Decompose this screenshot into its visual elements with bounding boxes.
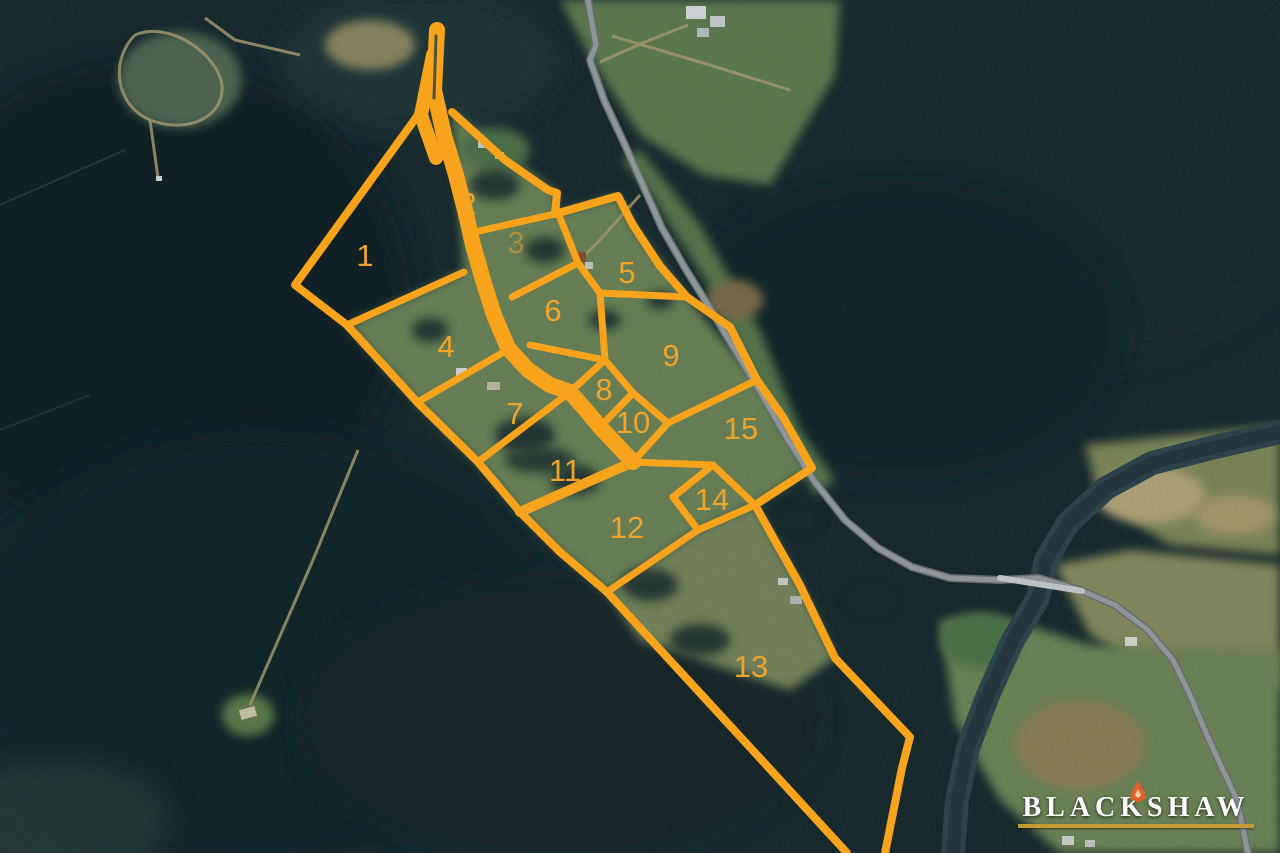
lot-label-11: 11 [549,453,581,488]
lot-label-13: 13 [734,649,768,684]
aerial-subdivision-map: 123456789101112131415 BLACKSHAW [0,0,1280,853]
lot-boundary-lot6-lot9 [600,293,605,360]
lot-label-12: 12 [610,510,644,545]
lot-label-6: 6 [544,293,561,328]
lot-boundary-lot5-lot9 [600,293,687,297]
lot-label-4: 4 [437,329,454,364]
lot-boundary-lot12-lot15 [633,462,713,465]
lot-label-8: 8 [595,372,612,407]
lot-label-9: 9 [662,338,679,373]
lot-label-2: 2 [459,186,476,221]
lot-label-14: 14 [695,482,729,517]
lot-label-7: 7 [506,396,523,431]
lot-label-10: 10 [616,405,650,440]
lot-label-15: 15 [724,411,758,446]
access-road-median [434,36,436,98]
lot-label-3: 3 [507,225,524,260]
agency-logo: BLACKSHAW [1018,793,1254,828]
lot-label-1: 1 [356,238,373,273]
logo-underline [1018,824,1254,828]
satellite-basemap: 123456789101112131415 [0,0,1280,853]
lot-label-5: 5 [618,255,635,290]
